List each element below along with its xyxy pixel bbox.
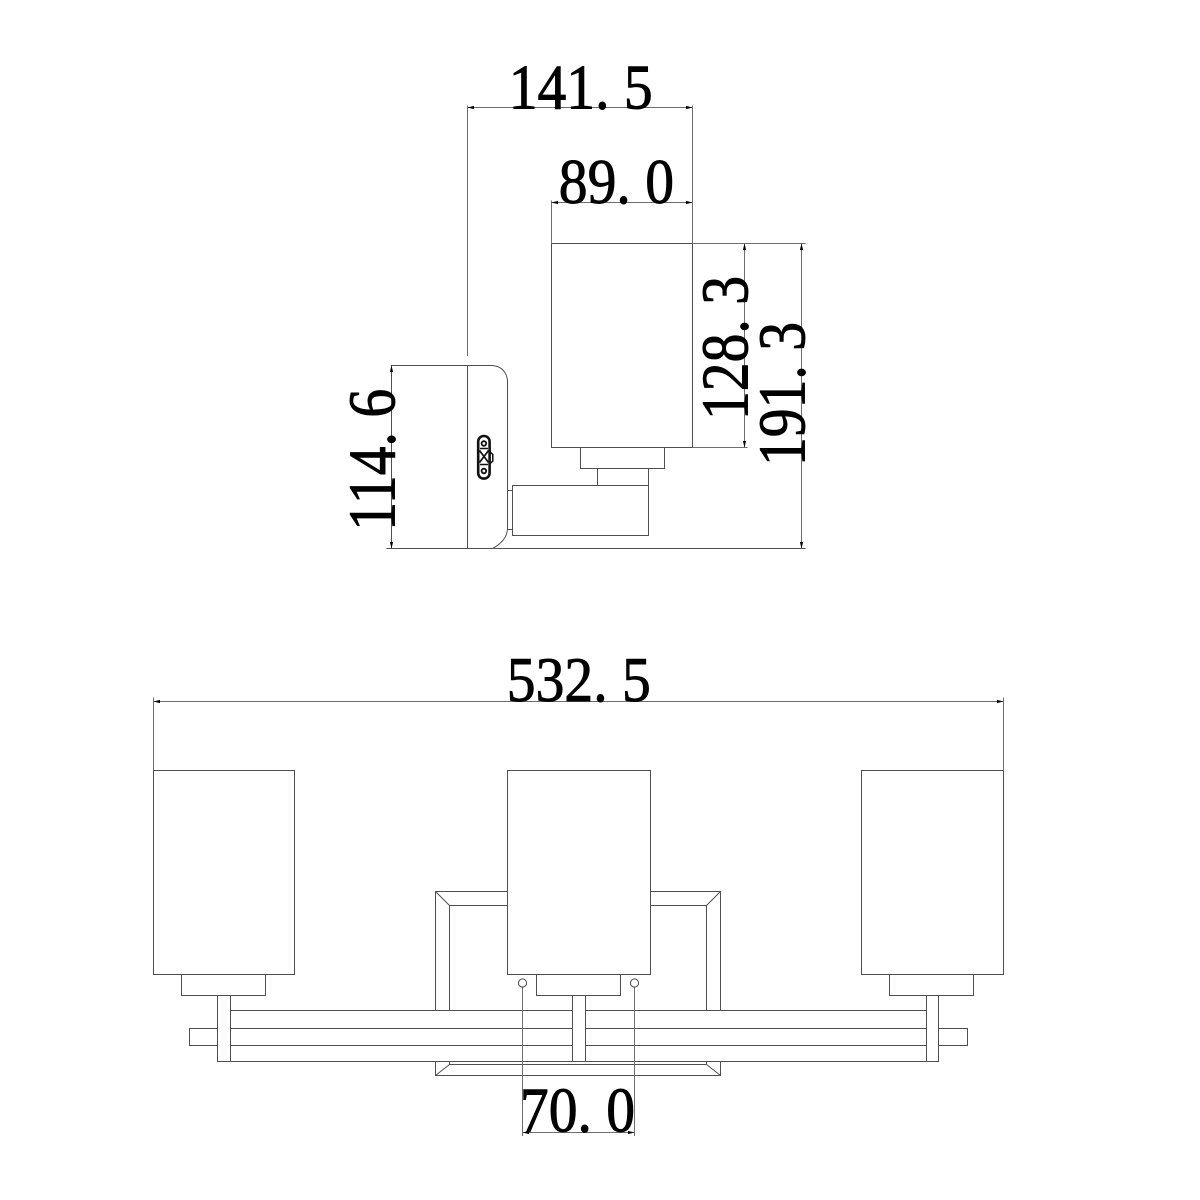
svg-text:141. 5: 141. 5 — [509, 53, 653, 123]
svg-text:532. 5: 532. 5 — [507, 645, 651, 715]
svg-text:89. 0: 89. 0 — [559, 147, 674, 217]
svg-text:191. 3: 191. 3 — [744, 322, 819, 466]
svg-text:114. 6: 114. 6 — [334, 389, 409, 531]
svg-text:70. 0: 70. 0 — [520, 1076, 635, 1146]
